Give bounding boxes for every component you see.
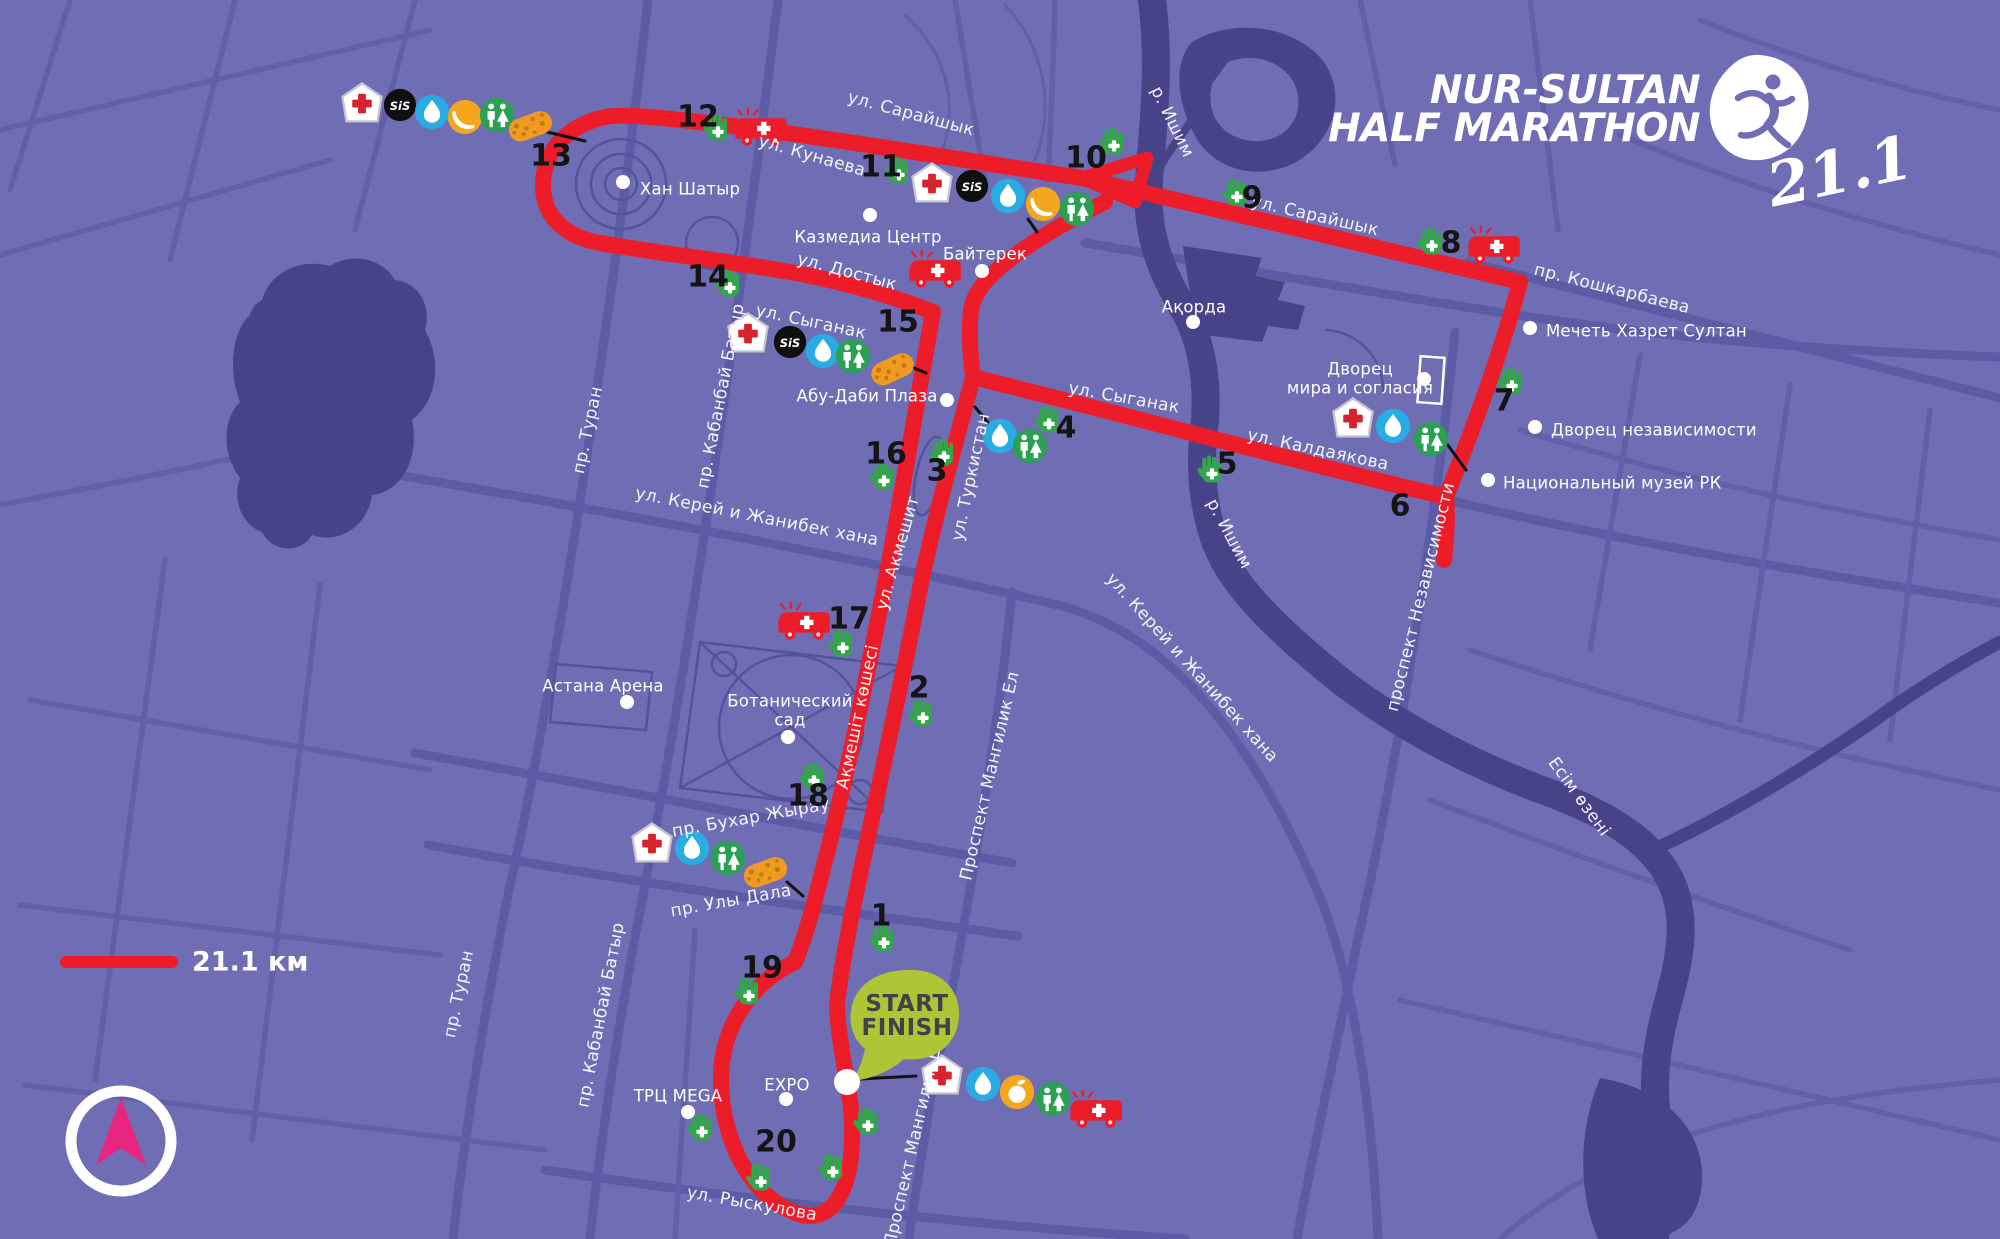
km-marker-5: 5 bbox=[1217, 447, 1238, 482]
place-name: Казмедиа Центр bbox=[794, 228, 941, 247]
km-marker-1: 1 bbox=[871, 899, 892, 934]
map-canvas: SiS bbox=[0, 0, 2000, 1239]
place-name: ТРЦ MEGA bbox=[633, 1087, 723, 1106]
place-dot bbox=[616, 175, 630, 189]
place-label-group: Мечеть Хазрет Султан bbox=[1523, 321, 1747, 341]
km-marker-17: 17 bbox=[828, 602, 870, 637]
km-marker-4: 4 bbox=[1056, 411, 1077, 446]
place-dot bbox=[620, 695, 634, 709]
sis-station-icon: sis bbox=[384, 89, 416, 121]
banana-station-icon: banana bbox=[448, 100, 482, 134]
logo-title-line2: HALF MARATHON bbox=[1328, 106, 1700, 151]
place-dot bbox=[1528, 420, 1542, 434]
km-marker-9: 9 bbox=[1242, 181, 1263, 216]
km-marker-20: 20 bbox=[755, 1125, 797, 1160]
start-point-dot bbox=[834, 1069, 860, 1095]
place-name: Мечеть Хазрет Султан bbox=[1546, 322, 1747, 341]
place-name: мира и согласия bbox=[1287, 379, 1433, 398]
km-marker-14: 14 bbox=[687, 260, 729, 295]
finish-label: FINISH bbox=[862, 1015, 953, 1041]
place-name: Абу-Даби Плаза bbox=[796, 387, 937, 406]
water-station-icon: water bbox=[415, 95, 449, 129]
legend-distance-label: 21.1 км bbox=[192, 947, 308, 978]
place-dot bbox=[975, 264, 989, 278]
place-dot bbox=[940, 393, 954, 407]
km-marker-11: 11 bbox=[860, 150, 902, 185]
km-marker-12: 12 bbox=[677, 100, 719, 135]
km-marker-8: 8 bbox=[1441, 226, 1462, 261]
place-dot bbox=[1523, 321, 1537, 335]
toilet-station-icon: toilet bbox=[1036, 1082, 1070, 1116]
water-station-icon: water bbox=[806, 334, 840, 368]
km-marker-3: 3 bbox=[927, 454, 948, 489]
km-marker-15: 15 bbox=[877, 305, 919, 340]
place-name: Национальный музей РК bbox=[1503, 474, 1722, 493]
place-dot bbox=[1186, 315, 1200, 329]
place-name: Ақорда bbox=[1162, 298, 1227, 317]
place-label-group: Абу-Даби Плаза bbox=[796, 387, 954, 408]
km-marker-13: 13 bbox=[530, 139, 572, 174]
start-label: START bbox=[865, 991, 948, 1017]
water-station-icon: water bbox=[991, 179, 1025, 213]
place-name: Ботанический bbox=[727, 692, 852, 711]
sis-station-icon: sis bbox=[956, 170, 988, 202]
place-dot bbox=[1481, 473, 1495, 487]
toilet-station-icon: toilet bbox=[1060, 192, 1094, 226]
km-marker-16: 16 bbox=[865, 437, 907, 472]
place-label-group: Дворец независимости bbox=[1528, 420, 1757, 440]
toilet-station-icon: toilet bbox=[1013, 429, 1047, 463]
place-name: Дворец независимости bbox=[1551, 421, 1757, 440]
banana-station-icon: banana bbox=[1026, 187, 1060, 221]
water-station-icon: water bbox=[966, 1067, 1000, 1101]
toilet-station-icon: toilet bbox=[711, 841, 745, 875]
orange-station-icon: orange bbox=[1000, 1075, 1034, 1109]
sis-station-icon: sis bbox=[774, 326, 806, 358]
place-name: EXPO bbox=[764, 1076, 809, 1095]
place-name: сад bbox=[774, 711, 805, 730]
water-station-icon: water bbox=[1376, 409, 1410, 443]
km-marker-6: 6 bbox=[1390, 489, 1411, 524]
place-label-group: Национальный музей РК bbox=[1481, 473, 1722, 493]
toilet-station-icon: toilet bbox=[836, 339, 870, 373]
toilet-station-icon: toilet bbox=[480, 98, 514, 132]
km-marker-2: 2 bbox=[909, 671, 930, 706]
place-dot bbox=[681, 1105, 695, 1119]
km-marker-18: 18 bbox=[787, 779, 829, 814]
toilet-station-icon: toilet bbox=[1414, 422, 1448, 456]
place-name: Хан Шатыр bbox=[640, 180, 740, 199]
place-name: Астана Арена bbox=[542, 677, 663, 696]
km-marker-7: 7 bbox=[1494, 384, 1515, 419]
km-marker-19: 19 bbox=[741, 951, 783, 986]
km-marker-10: 10 bbox=[1065, 141, 1107, 176]
marathon-route-map: SiS bbox=[0, 0, 2000, 1239]
place-dot bbox=[781, 730, 795, 744]
place-name: Байтерек bbox=[943, 245, 1027, 264]
place-dot bbox=[863, 208, 877, 222]
place-name: Дворец bbox=[1327, 360, 1393, 379]
